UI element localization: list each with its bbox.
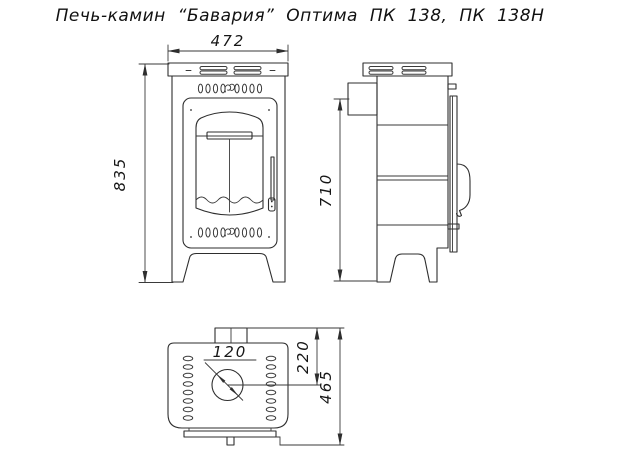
front-door-handle	[269, 157, 276, 211]
front-top-plate	[168, 63, 288, 76]
top-flue-collar	[215, 328, 247, 343]
dim-flue-diameter: 120	[204, 343, 256, 401]
ornament-curl	[225, 84, 235, 92]
drawing-title: Печь-камин “Бавария” Оптима ПК 138, ПК 1…	[56, 6, 545, 26]
dim-label-710: 710	[317, 173, 335, 208]
ornament-curl	[225, 228, 235, 236]
dim-front-height: 835	[111, 64, 173, 283]
dim-label-465: 465	[317, 369, 335, 404]
stove-technical-drawing: Печь-камин “Бавария” Оптима ПК 138, ПК 1…	[0, 0, 624, 460]
air-deflector-bar	[207, 132, 252, 139]
front-view	[168, 63, 288, 282]
front-upper-perforations	[198, 84, 261, 93]
side-view	[348, 63, 470, 282]
dim-front-width: 472	[168, 32, 288, 61]
dim-label-120: 120	[213, 343, 248, 361]
side-top-vents	[369, 67, 426, 75]
dim-label-472: 472	[211, 32, 246, 50]
top-front-step	[276, 437, 280, 445]
dim-label-835: 835	[111, 157, 129, 192]
door-corner-marks	[190, 109, 270, 238]
dim-depth: 465	[280, 328, 344, 445]
front-lower-perforations	[198, 228, 261, 237]
hinge-top	[448, 84, 456, 89]
dim-label-220: 220	[294, 339, 312, 374]
dim-side-height: 710	[317, 99, 376, 281]
front-body	[172, 76, 285, 282]
top-handle-knob	[227, 437, 234, 445]
side-door-handle	[457, 164, 471, 216]
top-door-bar	[184, 431, 276, 437]
top-left-perforations	[183, 356, 192, 420]
side-body	[377, 76, 448, 282]
rear-flue-box	[348, 83, 377, 115]
top-right-perforations	[266, 356, 275, 420]
front-top-vents	[186, 67, 275, 75]
drawing-canvas: Печь-камин “Бавария” Оптима ПК 138, ПК 1…	[0, 0, 624, 460]
